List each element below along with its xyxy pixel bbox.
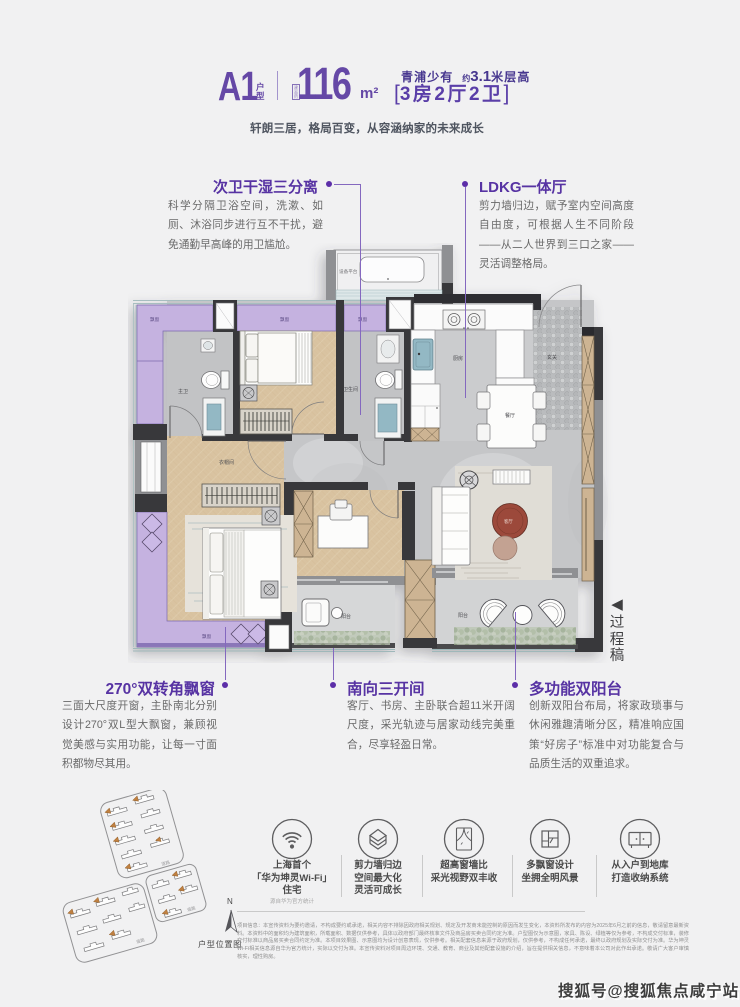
svg-text:玄关: 玄关 xyxy=(547,354,557,361)
svg-text:飘窗: 飘窗 xyxy=(150,316,160,323)
svg-text:卫生间: 卫生间 xyxy=(343,386,358,393)
svg-text:餐厅: 餐厅 xyxy=(505,412,515,419)
svg-text:设备平台: 设备平台 xyxy=(339,268,358,275)
svg-text:主卫: 主卫 xyxy=(178,388,188,395)
svg-text:户型位置图: 户型位置图 xyxy=(198,939,242,949)
svg-text:道路: 道路 xyxy=(135,936,146,945)
svg-text:阳台: 阳台 xyxy=(341,613,351,620)
svg-text:阳台: 阳台 xyxy=(458,612,468,619)
svg-text:厨房: 厨房 xyxy=(453,355,463,362)
svg-text:衣帽间: 衣帽间 xyxy=(219,459,234,466)
svg-text:N: N xyxy=(227,897,233,906)
svg-text:飘窗: 飘窗 xyxy=(280,316,290,323)
svg-text:客厅: 客厅 xyxy=(504,518,513,525)
svg-text:飘窗: 飘窗 xyxy=(202,633,212,640)
